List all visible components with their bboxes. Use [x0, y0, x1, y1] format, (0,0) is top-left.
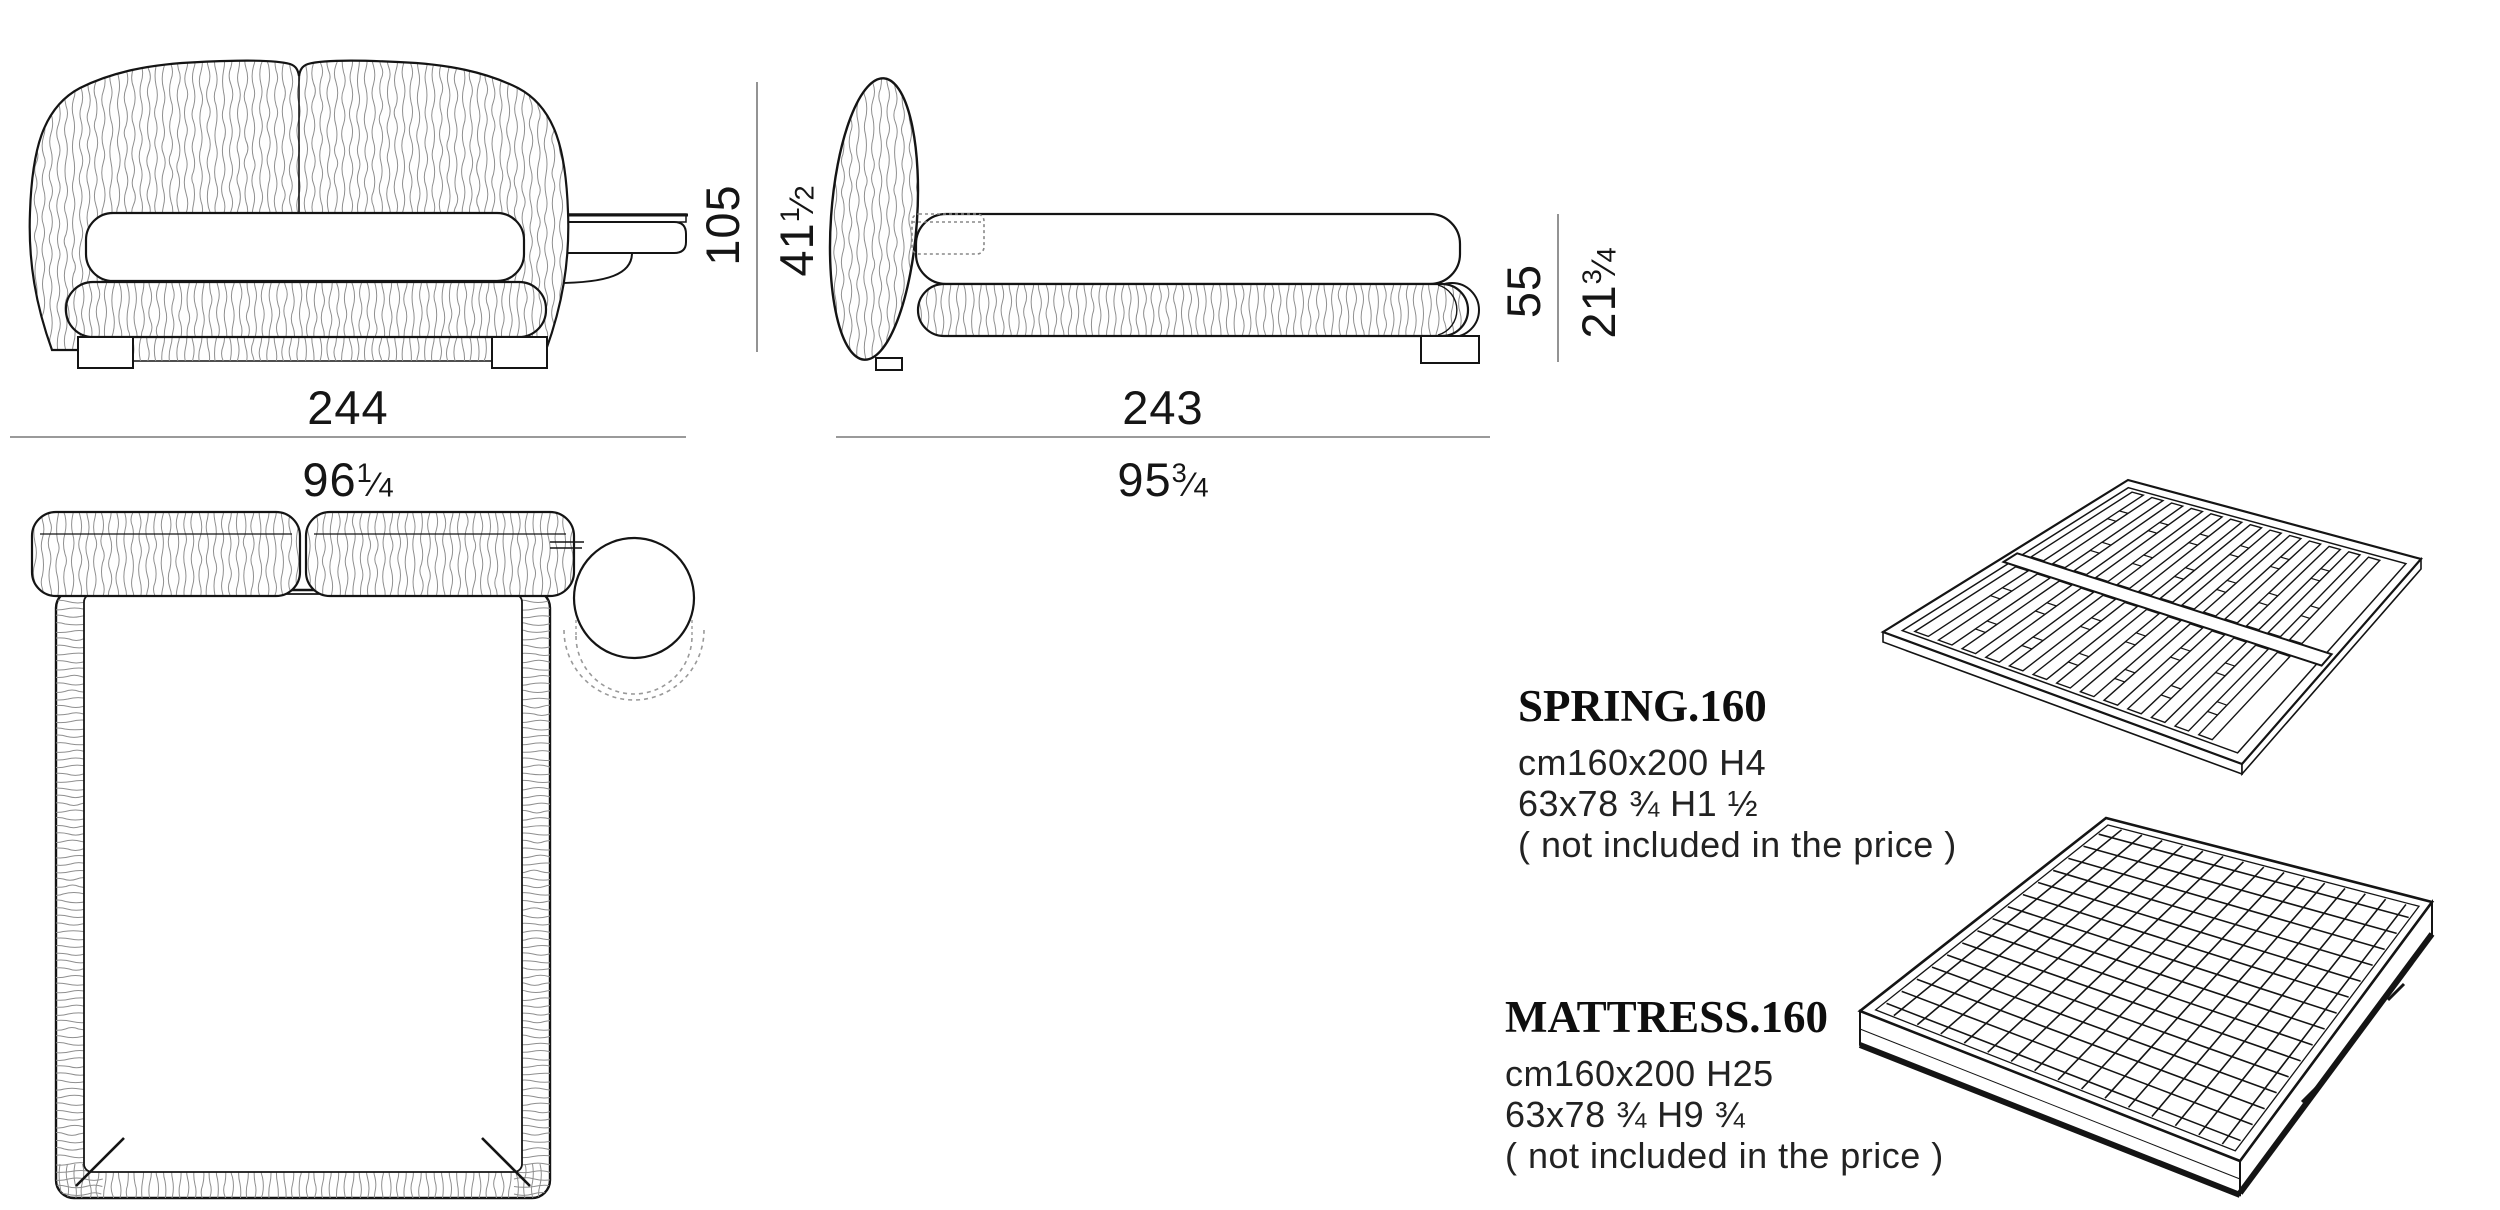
- side-height-inch-label: 213⁄4: [1569, 183, 1627, 403]
- product-size-in: 63x78 ¾ H9 ¾: [1505, 1094, 1944, 1135]
- product-specs: cm160x200 H25 63x78 ¾ H9 ¾ ( not include…: [1505, 1053, 1944, 1176]
- front-height-cm-label: 105: [693, 115, 751, 335]
- side-view-drawing: [821, 68, 1479, 386]
- front-view-drawing: [30, 50, 688, 389]
- side-height-cm-label: 55: [1494, 181, 1552, 401]
- product-specs: cm160x200 H4 63x78 ¾ H1 ½ ( not included…: [1518, 742, 1957, 865]
- product-title: SPRING.160: [1518, 682, 1957, 730]
- technical-drawing-canvas: [0, 0, 2500, 1210]
- product-size-in: 63x78 ¾ H1 ½: [1518, 783, 1957, 824]
- front-height-inch-label: 411⁄2: [767, 121, 825, 341]
- spring-base-drawing: [1883, 480, 2421, 774]
- side-length-inch-label: 953⁄4: [1043, 447, 1283, 514]
- mattress-drawing: [1860, 818, 2432, 1195]
- product-note: ( not included in the price ): [1505, 1135, 1944, 1176]
- front-width-cm-label: 244: [228, 382, 468, 434]
- spec-sheet: 244 961⁄4 243 953⁄4 105 411⁄2 55 213⁄4 S…: [0, 0, 2500, 1210]
- spring-product-block: SPRING.160 cm160x200 H4 63x78 ¾ H1 ½ ( n…: [1518, 682, 1957, 865]
- side-length-cm-label: 243: [1043, 382, 1283, 434]
- product-note: ( not included in the price ): [1518, 824, 1957, 865]
- top-view-drawing: [32, 500, 704, 1210]
- product-size-cm: cm160x200 H25: [1505, 1053, 1944, 1094]
- front-width-inch-label: 961⁄4: [228, 447, 468, 514]
- product-size-cm: cm160x200 H4: [1518, 742, 1957, 783]
- product-title: MATTRESS.160: [1505, 993, 1944, 1041]
- mattress-product-block: MATTRESS.160 cm160x200 H25 63x78 ¾ H9 ¾ …: [1505, 993, 1944, 1176]
